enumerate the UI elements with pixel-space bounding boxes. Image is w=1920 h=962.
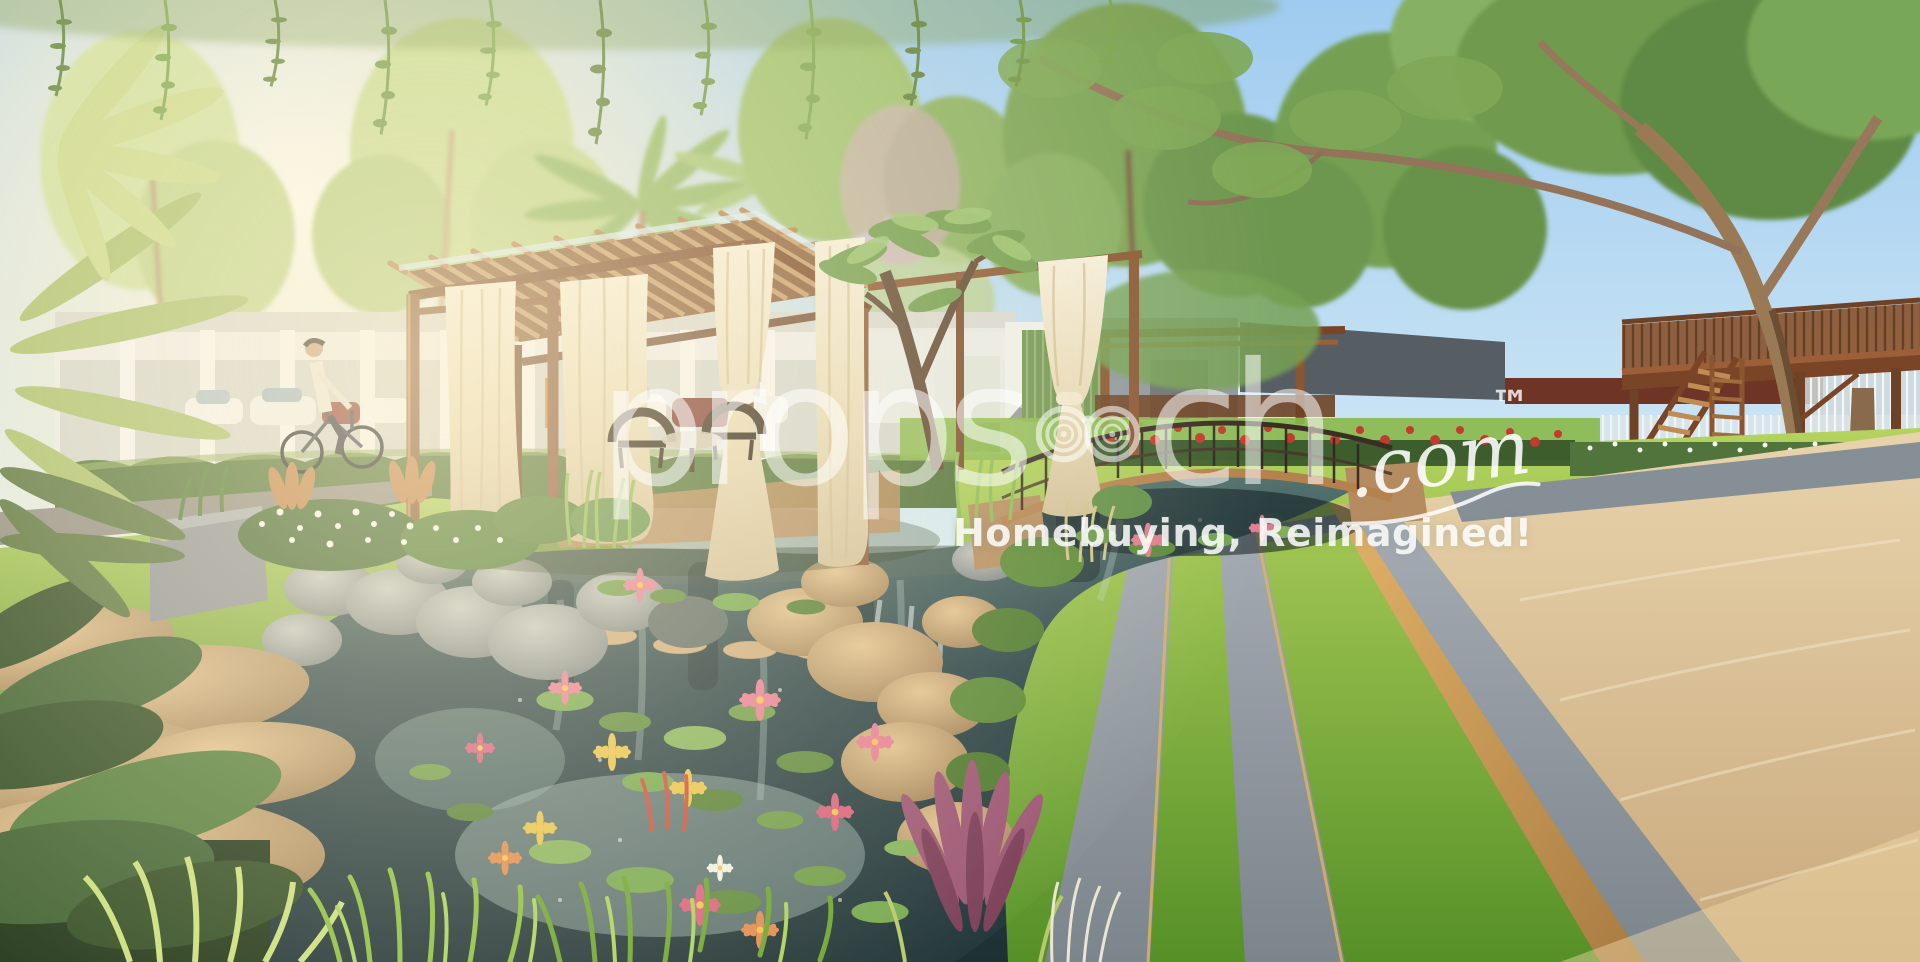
brand-wordmark: props ch (598, 341, 1328, 511)
garden-render: props ch ™ .com Homebuying, Reimagined! (0, 0, 1920, 962)
brand-prefix: props (598, 341, 1026, 511)
propsoch-glasses-icon (1036, 385, 1140, 471)
tagline-text: Homebuying, Reimagined! (953, 511, 1533, 555)
brand-suffix: ch (1146, 341, 1329, 511)
